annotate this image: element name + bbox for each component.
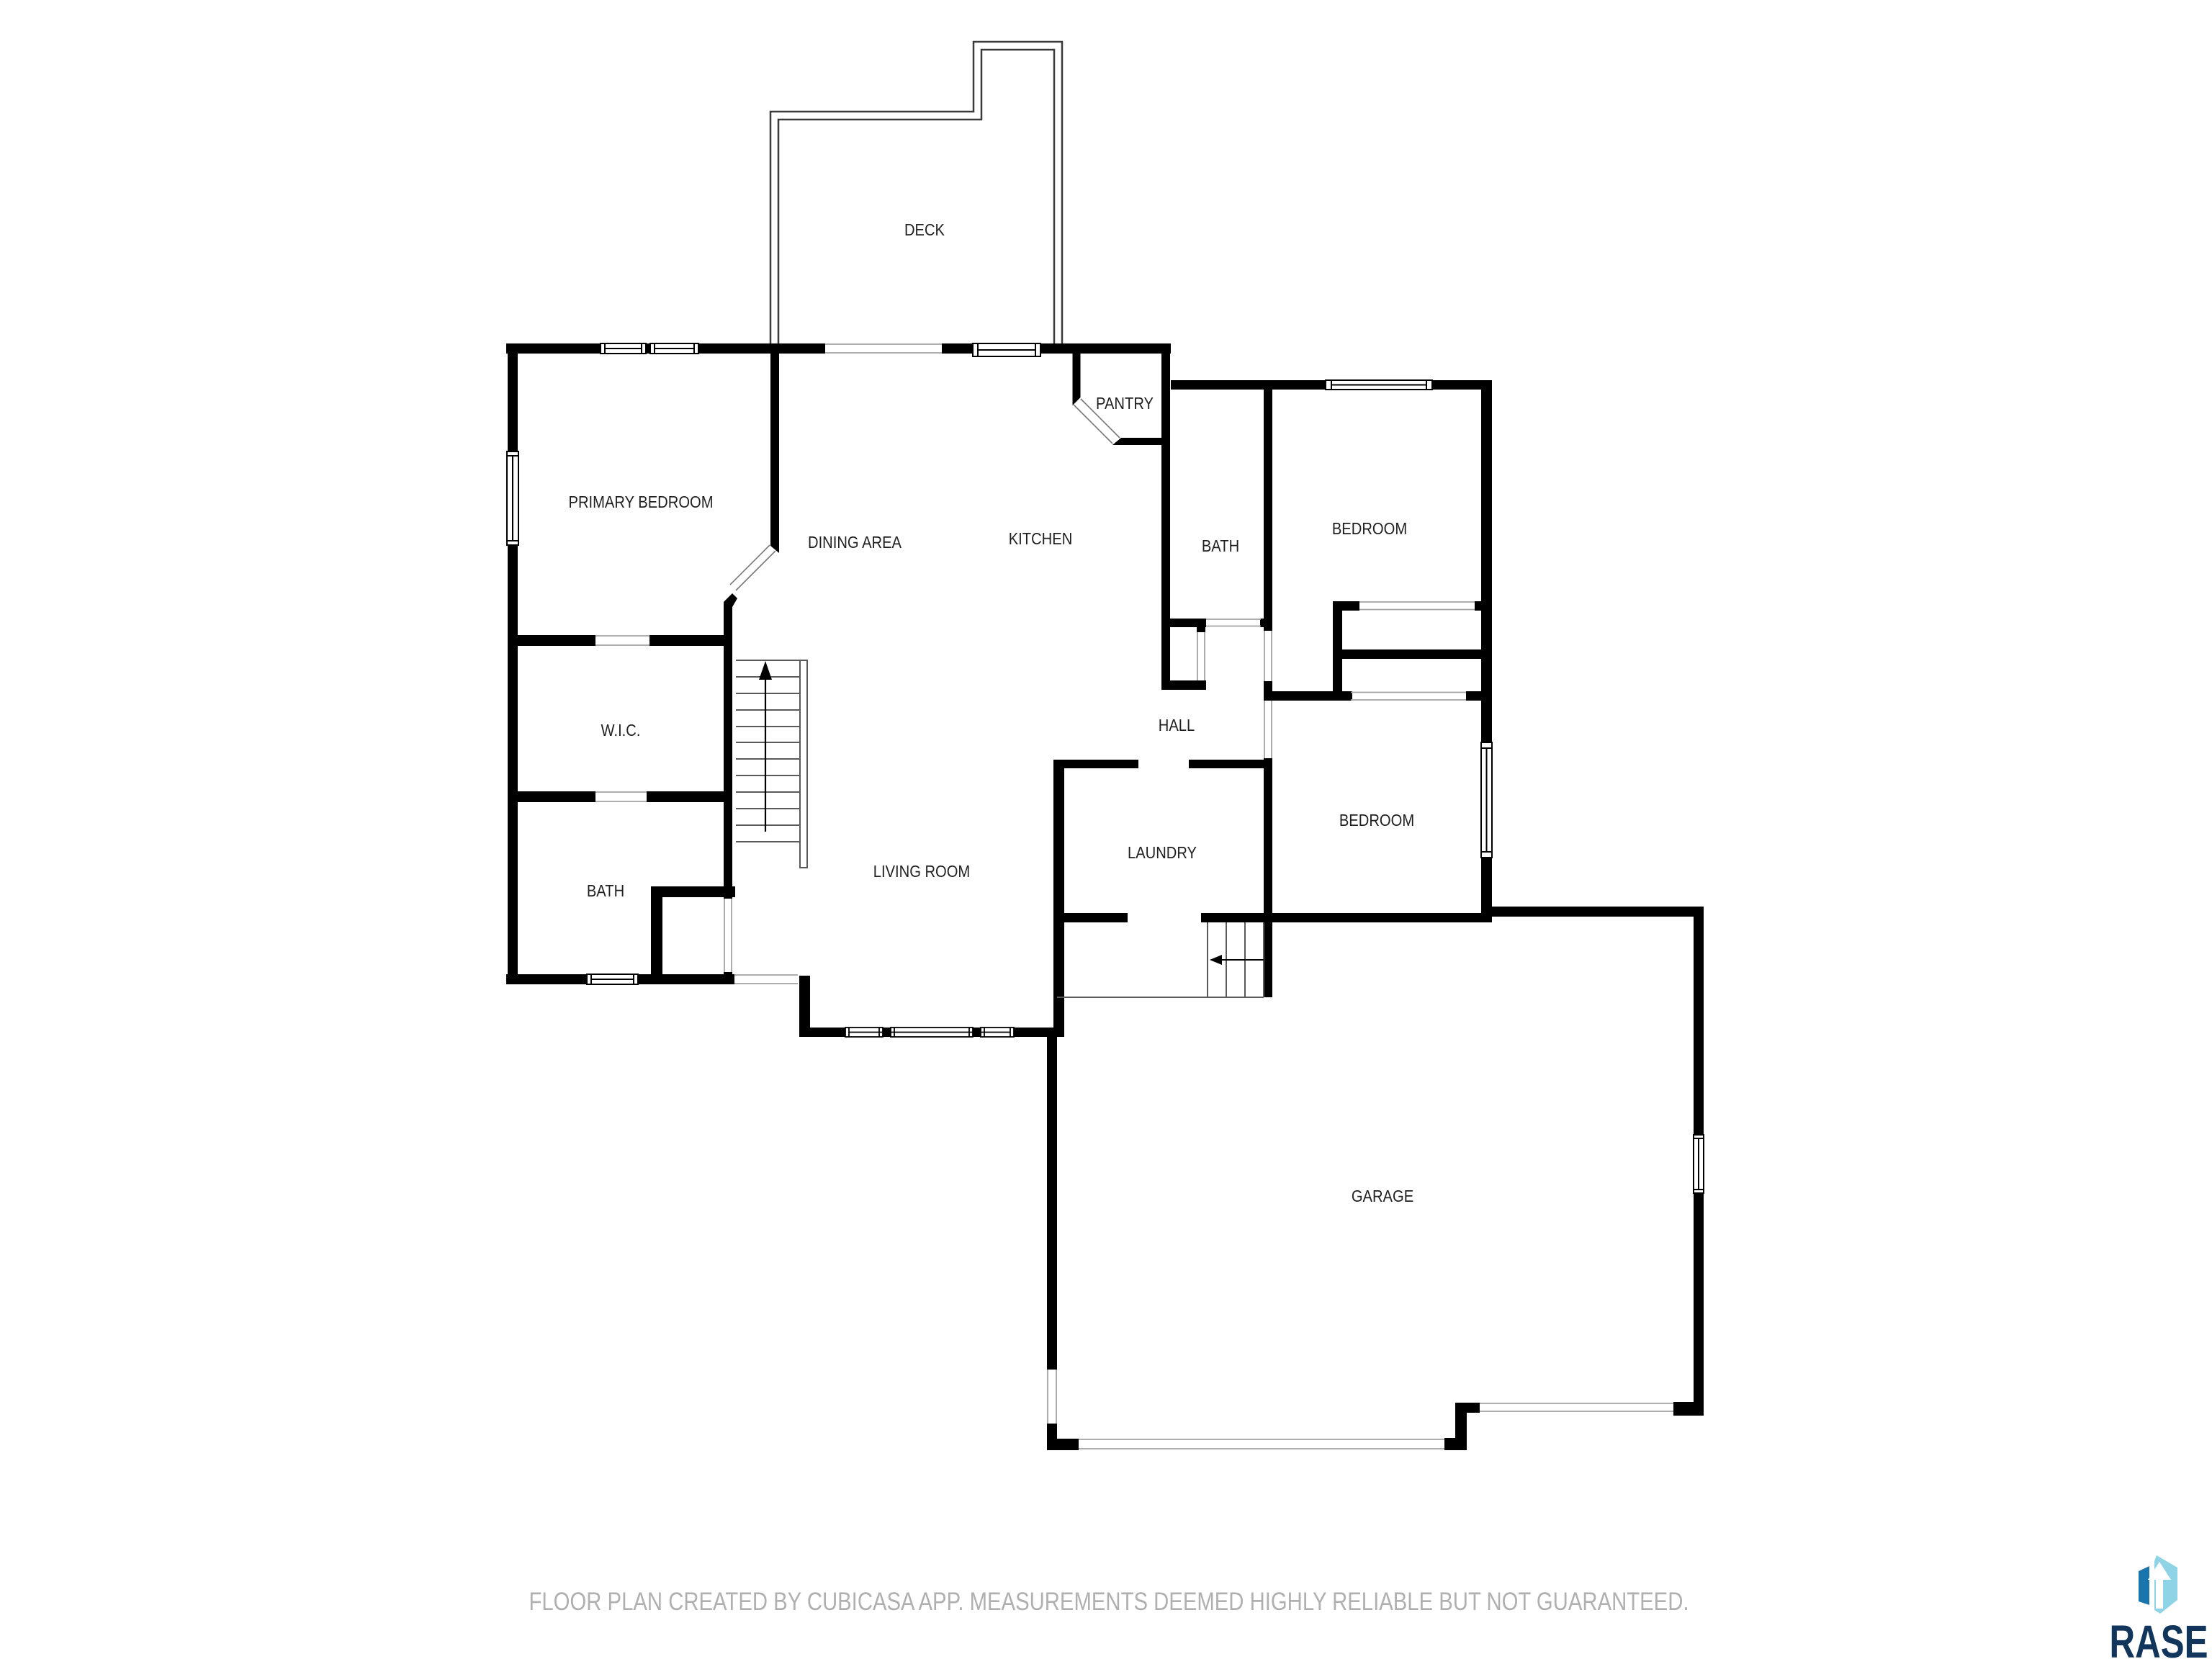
svg-text:W.I.C.: W.I.C. (601, 721, 641, 739)
svg-text:BEDROOM: BEDROOM (1332, 519, 1407, 538)
svg-text:PANTRY: PANTRY (1096, 394, 1154, 413)
svg-text:BATH: BATH (1202, 536, 1239, 555)
svg-text:FLOOR PLAN CREATED BY CUBICASA: FLOOR PLAN CREATED BY CUBICASA APP. MEAS… (529, 1588, 1689, 1616)
svg-text:BEDROOM: BEDROOM (1339, 811, 1414, 829)
svg-text:KITCHEN: KITCHEN (1009, 529, 1073, 548)
svg-text:RASE: RASE (2110, 1616, 2208, 1659)
svg-text:DECK: DECK (904, 220, 945, 239)
svg-text:DINING AREA: DINING AREA (808, 533, 902, 552)
svg-text:BATH: BATH (587, 881, 624, 900)
svg-text:PRIMARY BEDROOM: PRIMARY BEDROOM (569, 493, 714, 511)
svg-text:HALL: HALL (1159, 716, 1195, 734)
svg-text:LAUNDRY: LAUNDRY (1128, 843, 1197, 862)
svg-text:GARAGE: GARAGE (1352, 1187, 1413, 1205)
svg-text:LIVING ROOM: LIVING ROOM (873, 862, 971, 881)
